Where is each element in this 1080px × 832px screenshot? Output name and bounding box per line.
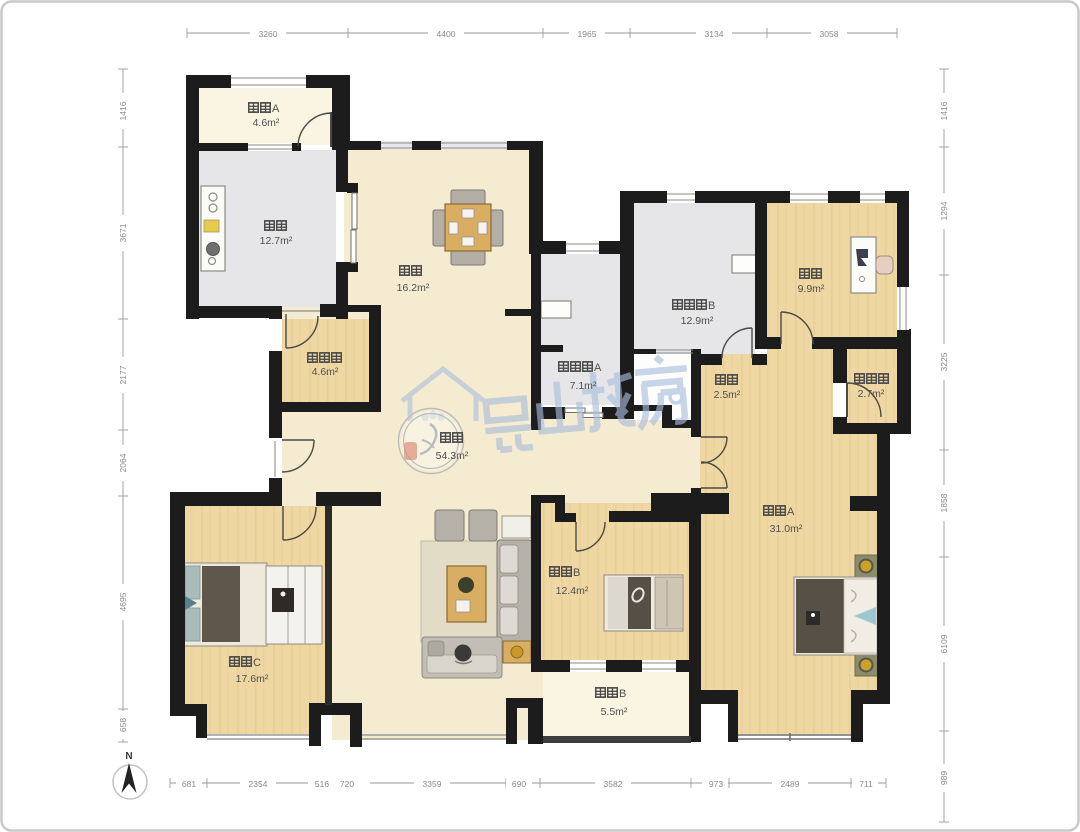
svg-text:9.9m²: 9.9m² — [798, 283, 825, 295]
svg-text:12.9m²: 12.9m² — [681, 315, 714, 327]
svg-text:720: 720 — [340, 779, 354, 789]
svg-text:4.6m²: 4.6m² — [253, 117, 280, 129]
svg-text:16.2m²: 16.2m² — [397, 282, 430, 294]
svg-text:1858: 1858 — [939, 493, 949, 512]
svg-text:3582: 3582 — [604, 779, 623, 789]
svg-text:1294: 1294 — [939, 201, 949, 220]
svg-text:C: C — [253, 657, 261, 669]
svg-text:B: B — [708, 300, 715, 312]
svg-text:711: 711 — [859, 779, 873, 789]
svg-text:54.3m²: 54.3m² — [436, 450, 469, 462]
svg-text:7.1m²: 7.1m² — [570, 380, 597, 392]
svg-text:4695: 4695 — [118, 592, 128, 611]
svg-text:3671: 3671 — [118, 223, 128, 242]
svg-text:B: B — [573, 567, 580, 579]
svg-text:12.7m²: 12.7m² — [260, 235, 293, 247]
svg-text:989: 989 — [939, 771, 949, 785]
svg-text:3359: 3359 — [423, 779, 442, 789]
svg-text:3225: 3225 — [939, 352, 949, 371]
svg-text:690: 690 — [512, 779, 526, 789]
svg-text:2.7m²: 2.7m² — [858, 388, 885, 400]
svg-text:516: 516 — [315, 779, 329, 789]
svg-text:12.4m²: 12.4m² — [556, 585, 589, 597]
svg-text:2177: 2177 — [118, 365, 128, 384]
svg-text:2064: 2064 — [118, 453, 128, 472]
svg-text:3058: 3058 — [820, 29, 839, 39]
svg-text:1416: 1416 — [939, 101, 949, 120]
svg-text:A: A — [594, 362, 602, 374]
svg-text:3134: 3134 — [705, 29, 724, 39]
svg-text:5.5m²: 5.5m² — [601, 706, 628, 718]
svg-text:4.6m²: 4.6m² — [312, 366, 339, 378]
svg-text:A: A — [787, 506, 795, 518]
svg-text:4400: 4400 — [437, 29, 456, 39]
svg-text:1416: 1416 — [118, 101, 128, 120]
svg-text:973: 973 — [709, 779, 723, 789]
svg-text:6109: 6109 — [939, 634, 949, 653]
svg-text:17.6m²: 17.6m² — [236, 673, 269, 685]
svg-text:1965: 1965 — [578, 29, 597, 39]
svg-text:B: B — [619, 688, 626, 700]
svg-text:A: A — [272, 103, 280, 115]
svg-text:2.5m²: 2.5m² — [714, 389, 741, 401]
svg-text:N: N — [125, 751, 132, 762]
svg-text:31.0m²: 31.0m² — [770, 523, 803, 535]
svg-text:2489: 2489 — [781, 779, 800, 789]
svg-text:3260: 3260 — [259, 29, 278, 39]
svg-text:2354: 2354 — [249, 779, 268, 789]
svg-text:681: 681 — [182, 779, 196, 789]
svg-text:658: 658 — [118, 718, 128, 732]
